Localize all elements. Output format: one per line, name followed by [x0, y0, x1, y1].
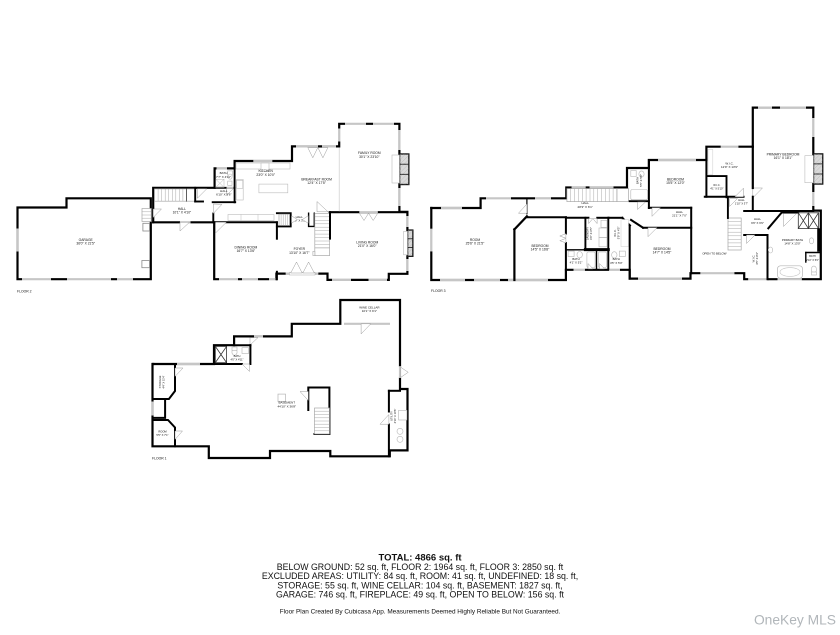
svg-text:BATH: BATH: [809, 255, 816, 258]
svg-text:23'0" X 10'0": 23'0" X 10'0": [256, 173, 275, 177]
svg-text:4'0" X 4'11": 4'0" X 4'11": [230, 357, 243, 361]
svg-text:15'5" X 12'0": 15'5" X 12'0": [666, 181, 685, 185]
svg-text:4'1" X 5'2": 4'1" X 5'2": [570, 260, 583, 264]
svg-text:4'4" X 11'4": 4'4" X 11'4": [161, 375, 165, 388]
svg-text:30'1" X 23'10": 30'1" X 23'10": [359, 155, 380, 159]
svg-text:16'1" X 18'1": 16'1" X 18'1": [774, 156, 793, 160]
svg-text:4'1" X 5'10": 4'1" X 5'10": [710, 187, 723, 191]
svg-text:Floor Plan Created By Cubicasa: Floor Plan Created By Cubicasa App. Meas…: [280, 609, 561, 616]
svg-text:21'1" X 7'0": 21'1" X 7'0": [672, 213, 687, 217]
svg-text:36'0" X 21'5": 36'0" X 21'5": [76, 242, 95, 246]
svg-text:OneKey MLS: OneKey MLS: [754, 613, 836, 628]
svg-text:25'6" X 21'5": 25'6" X 21'5": [466, 242, 485, 246]
svg-text:6'10" X 3'6": 6'10" X 3'6": [216, 193, 231, 197]
svg-text:W.I.C.: W.I.C.: [713, 183, 720, 187]
svg-text:OPEN TO BELOW: OPEN TO BELOW: [702, 252, 726, 256]
svg-text:10'1" X 4'10": 10'1" X 4'10": [173, 210, 192, 214]
svg-text:ROOM: ROOM: [158, 429, 167, 433]
svg-text:6'0" X 6'5": 6'0" X 6'5": [589, 227, 593, 240]
svg-text:14'5" X 16'8": 14'5" X 16'8": [531, 248, 550, 252]
svg-text:5'9" X 4'5": 5'9" X 4'5": [617, 227, 621, 240]
svg-text:HALL: HALL: [738, 198, 745, 202]
svg-text:21'0" X 16'0": 21'0" X 16'0": [358, 244, 377, 248]
svg-text:14'7" X 14'5": 14'7" X 14'5": [653, 251, 672, 255]
svg-text:2'10" X 5'0": 2'10" X 5'0": [806, 259, 819, 262]
svg-text:12'4" X 17'5": 12'4" X 17'5": [307, 181, 326, 185]
svg-text:4'5" X 8'4": 4'5" X 8'4": [755, 252, 759, 265]
svg-text:9'6" X 6'9": 9'6" X 6'9": [751, 221, 764, 225]
svg-text:10'1" X 9'1": 10'1" X 9'1": [362, 309, 377, 313]
svg-text:5'5" X 7'1": 5'5" X 7'1": [156, 433, 168, 437]
svg-text:7'7" X 4'11": 7'7" X 4'11": [216, 175, 231, 179]
svg-text:FLOOR 3: FLOOR 3: [431, 289, 446, 293]
svg-text:STORAGE: STORAGE: [158, 375, 162, 388]
svg-text:FLOOR 1: FLOOR 1: [152, 457, 167, 461]
svg-text:4'10" X 10'6": 4'10" X 10'6": [393, 409, 397, 424]
svg-text:5'5" X 5'8": 5'5" X 5'8": [639, 174, 643, 187]
svg-text:14'8" X 13'0": 14'8" X 13'0": [784, 242, 800, 246]
svg-text:44'10" X 36'8": 44'10" X 36'8": [277, 404, 296, 408]
svg-text:16'7" X 13'6": 16'7" X 13'6": [237, 249, 256, 253]
svg-text:28'3" X 6'1": 28'3" X 6'1": [578, 205, 593, 209]
svg-text:12'9" X 13'9": 12'9" X 13'9": [721, 165, 738, 169]
svg-text:BATH: BATH: [234, 354, 241, 358]
svg-text:1'10" X 3'7": 1'10" X 3'7": [735, 201, 748, 205]
svg-text:FLOOR 2: FLOOR 2: [17, 290, 32, 294]
svg-text:4'5" X 5'0": 4'5" X 5'0": [610, 261, 623, 265]
svg-text:GARAGE: 746 sq. ft, FIREPLACE:: GARAGE: 746 sq. ft, FIREPLACE: 49 sq. ft…: [276, 590, 565, 600]
svg-text:13'10" X 16'7": 13'10" X 16'7": [289, 251, 310, 255]
svg-text:UTILITY: UTILITY: [389, 411, 393, 421]
